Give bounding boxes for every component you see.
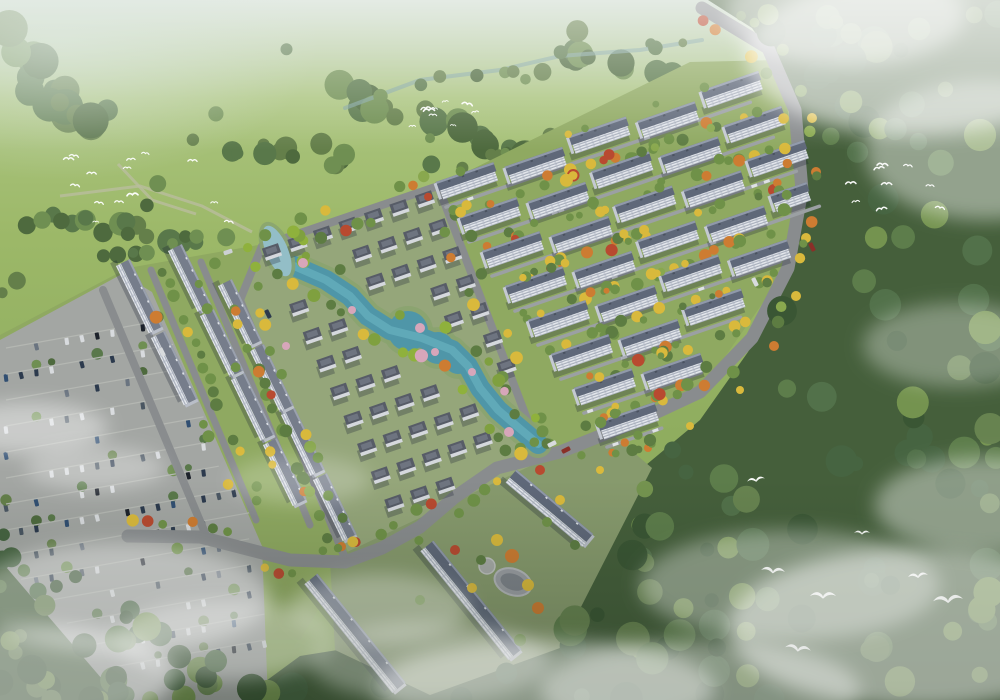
street-tree [326, 300, 336, 310]
street-tree [195, 280, 203, 288]
street-tree [197, 351, 205, 359]
street-tree [408, 181, 418, 191]
street-tree [446, 253, 455, 262]
street-tree [727, 366, 740, 379]
pond-tree [287, 226, 300, 239]
cluster-tree [601, 206, 609, 214]
parked-car [125, 378, 130, 386]
autumn-tree [791, 291, 801, 301]
cluster-tree [566, 213, 574, 221]
cluster-tree [595, 372, 605, 382]
cluster-tree [625, 238, 632, 245]
street-tree [455, 207, 466, 218]
aerial-site-rendering [0, 0, 1000, 700]
tree [53, 213, 70, 230]
blossom-tree [431, 348, 439, 356]
autumn-tree [736, 386, 744, 394]
street-tree [772, 316, 784, 328]
fog-patch [230, 456, 370, 504]
street-tree [165, 278, 175, 288]
forest-tree [679, 465, 694, 480]
tree [109, 246, 126, 263]
forest-tree [778, 380, 796, 398]
cluster-tree [586, 372, 593, 379]
autumn-tree [769, 341, 779, 351]
street-tree [307, 289, 320, 302]
cluster-tree [724, 156, 733, 165]
cluster-tree [599, 156, 607, 164]
cluster-tree [586, 159, 597, 170]
blossom-tree [504, 427, 514, 437]
street-tree [439, 360, 451, 372]
street-tree [197, 363, 208, 374]
street-tree [199, 420, 208, 429]
cluster-tree [683, 345, 693, 355]
street-tree [467, 298, 480, 311]
cluster-tree [569, 171, 578, 180]
cluster-tree [586, 287, 596, 297]
cluster-tree [519, 274, 526, 281]
forest-tree [852, 269, 876, 293]
street-tree [795, 253, 805, 263]
cluster-tree [615, 315, 627, 327]
cluster-tree [715, 290, 723, 298]
street-tree [335, 264, 346, 275]
street-tree [464, 288, 473, 297]
street-tree [415, 349, 428, 362]
street-tree [440, 321, 452, 333]
parking-tree [185, 464, 192, 471]
street-tree [424, 193, 432, 201]
tree [190, 230, 204, 244]
cluster-tree [587, 327, 598, 338]
street-tree [260, 378, 271, 389]
street-tree [485, 424, 495, 434]
blossom-tree [298, 258, 308, 268]
cluster-tree [640, 316, 647, 323]
blossom-tree [348, 306, 356, 314]
cluster-tree [770, 269, 778, 277]
street-tree [202, 303, 213, 314]
street-tree [531, 414, 540, 423]
cluster-tree [516, 189, 525, 198]
cluster-tree [709, 293, 715, 299]
tree [97, 249, 110, 262]
street-tree [621, 438, 629, 446]
blossom-tree [415, 323, 425, 333]
street-tree [208, 386, 219, 397]
cluster-tree [694, 209, 702, 217]
street-tree [231, 306, 241, 316]
pond-tree [250, 262, 260, 272]
fog-patch [25, 446, 165, 490]
street-tree [492, 374, 505, 387]
street-tree [304, 441, 316, 453]
cluster-tree [673, 390, 682, 399]
cluster-tree [639, 225, 649, 235]
street-tree [210, 398, 223, 411]
street-tree [812, 171, 821, 180]
street-tree [395, 310, 405, 320]
cluster-tree [539, 180, 549, 190]
street-tree [295, 212, 308, 225]
street-tree [351, 218, 363, 230]
cluster-tree [714, 198, 725, 209]
forest-tree [897, 386, 929, 418]
cluster-tree [631, 278, 644, 291]
cluster-tree [537, 310, 545, 318]
street-tree [358, 329, 369, 340]
street-tree [267, 390, 276, 399]
courtyard-tree [596, 466, 604, 474]
street-tree [243, 344, 252, 353]
street-tree [465, 230, 477, 242]
street-tree [530, 437, 540, 447]
street-tree [440, 227, 451, 238]
street-tree [167, 290, 179, 302]
blossom-tree [282, 342, 290, 350]
tree [422, 156, 440, 174]
cluster-tree [606, 244, 618, 256]
tree [121, 227, 135, 241]
cluster-tree [766, 230, 775, 239]
cluster-tree [655, 183, 665, 193]
street-tree [158, 268, 167, 277]
street-tree [265, 346, 275, 356]
cluster-tree [715, 330, 725, 340]
cluster-tree [691, 168, 704, 181]
cluster-tree [709, 206, 717, 214]
cluster-tree [653, 270, 661, 278]
street-tree [494, 433, 504, 443]
street-tree [233, 319, 243, 329]
blossom-tree [468, 368, 476, 376]
cluster-tree [619, 229, 628, 238]
street-tree [762, 278, 772, 288]
cluster-tree [672, 341, 679, 348]
cluster-tree [681, 260, 689, 268]
cluster-tree [653, 302, 665, 314]
parking-tree [48, 358, 55, 365]
street-tree [228, 435, 239, 446]
street-tree [368, 333, 381, 346]
cluster-tree [530, 219, 538, 227]
cluster-tree [487, 200, 495, 208]
street-tree [581, 421, 592, 432]
street-tree [236, 447, 245, 456]
rendering-canvas [0, 0, 1000, 700]
street-tree [265, 446, 275, 456]
cluster-tree [610, 409, 620, 419]
autumn-tree [686, 422, 694, 430]
street-tree [287, 278, 299, 290]
cluster-tree [567, 294, 577, 304]
street-tree [259, 319, 271, 331]
forest-tree [807, 382, 837, 412]
street-tree [732, 329, 740, 337]
tree [34, 211, 51, 228]
cluster-tree [755, 193, 763, 201]
cluster-tree [723, 236, 735, 248]
cluster-tree [581, 246, 593, 258]
forest-tree [664, 442, 681, 459]
tree [149, 175, 166, 192]
pond-tree [272, 269, 283, 280]
street-tree [485, 357, 494, 366]
cluster-tree [632, 354, 645, 367]
tree [8, 272, 26, 290]
street-tree [776, 301, 787, 312]
cluster-tree [733, 155, 745, 167]
street-tree [595, 417, 606, 428]
cluster-tree [612, 450, 620, 458]
tree [217, 228, 235, 246]
courtyard-tree [535, 465, 545, 475]
tree [139, 245, 155, 261]
tree [128, 248, 138, 258]
street-tree [700, 361, 712, 373]
street-tree [500, 387, 509, 396]
street-tree [254, 282, 263, 291]
cluster-tree [679, 303, 687, 311]
street-tree [577, 451, 585, 459]
parked-car [110, 329, 115, 337]
cluster-tree [681, 378, 694, 391]
cluster-tree [658, 352, 665, 359]
street-tree [337, 308, 345, 316]
street-tree [276, 369, 287, 380]
street-tree [253, 366, 265, 378]
cluster-tree [561, 259, 570, 268]
cluster-tree [604, 288, 610, 294]
street-tree [255, 308, 264, 317]
street-tree [537, 425, 549, 437]
tree [18, 216, 36, 234]
cluster-tree [702, 171, 712, 181]
street-tree [394, 181, 405, 192]
street-tree [500, 445, 512, 457]
street-tree [476, 268, 487, 279]
tree [286, 149, 300, 163]
street-tree [205, 373, 216, 384]
pond-tree [243, 243, 252, 252]
fog-patch [290, 574, 470, 642]
street-tree [654, 388, 666, 400]
street-tree [514, 447, 527, 460]
street-tree [458, 385, 468, 395]
street-tree [799, 240, 807, 248]
forest-tree [865, 226, 887, 248]
tree [140, 199, 154, 213]
forest-tree [891, 225, 915, 249]
cluster-tree [806, 216, 818, 228]
cluster-tree [644, 434, 656, 446]
street-tree [778, 203, 791, 216]
street-tree [366, 218, 376, 228]
street-tree [418, 171, 429, 182]
street-tree [471, 345, 483, 357]
cluster-tree [546, 263, 556, 273]
cluster-tree [576, 212, 583, 219]
street-tree [315, 232, 327, 244]
street-tree [510, 351, 523, 364]
cluster-tree [456, 166, 466, 176]
cluster-tree [734, 235, 747, 248]
street-tree [231, 362, 241, 372]
tree [78, 210, 93, 225]
street-tree [267, 404, 277, 414]
street-tree [740, 317, 751, 328]
street-tree [782, 190, 792, 200]
street-tree [320, 205, 330, 215]
cluster-tree [626, 444, 638, 456]
street-tree [503, 329, 512, 338]
street-tree [279, 425, 292, 438]
street-tree [340, 225, 352, 237]
cluster-tree [699, 380, 710, 391]
parked-car [34, 369, 39, 377]
street-tree [209, 258, 221, 270]
street-tree [150, 311, 163, 324]
street-tree [633, 431, 642, 440]
street-tree [203, 430, 215, 442]
street-tree [183, 327, 193, 337]
street-tree [179, 315, 189, 325]
cluster-tree [714, 154, 725, 165]
street-tree [783, 159, 792, 168]
street-tree [509, 409, 519, 419]
forest-tree [962, 236, 992, 266]
street-tree [192, 338, 201, 347]
cluster-tree [587, 197, 599, 209]
forest-tree [826, 445, 858, 477]
street-tree [259, 229, 271, 241]
cluster-tree [621, 360, 629, 368]
cluster-tree [542, 170, 553, 181]
street-tree [398, 347, 408, 357]
street-tree [301, 429, 312, 440]
fog-patch [640, 530, 940, 640]
